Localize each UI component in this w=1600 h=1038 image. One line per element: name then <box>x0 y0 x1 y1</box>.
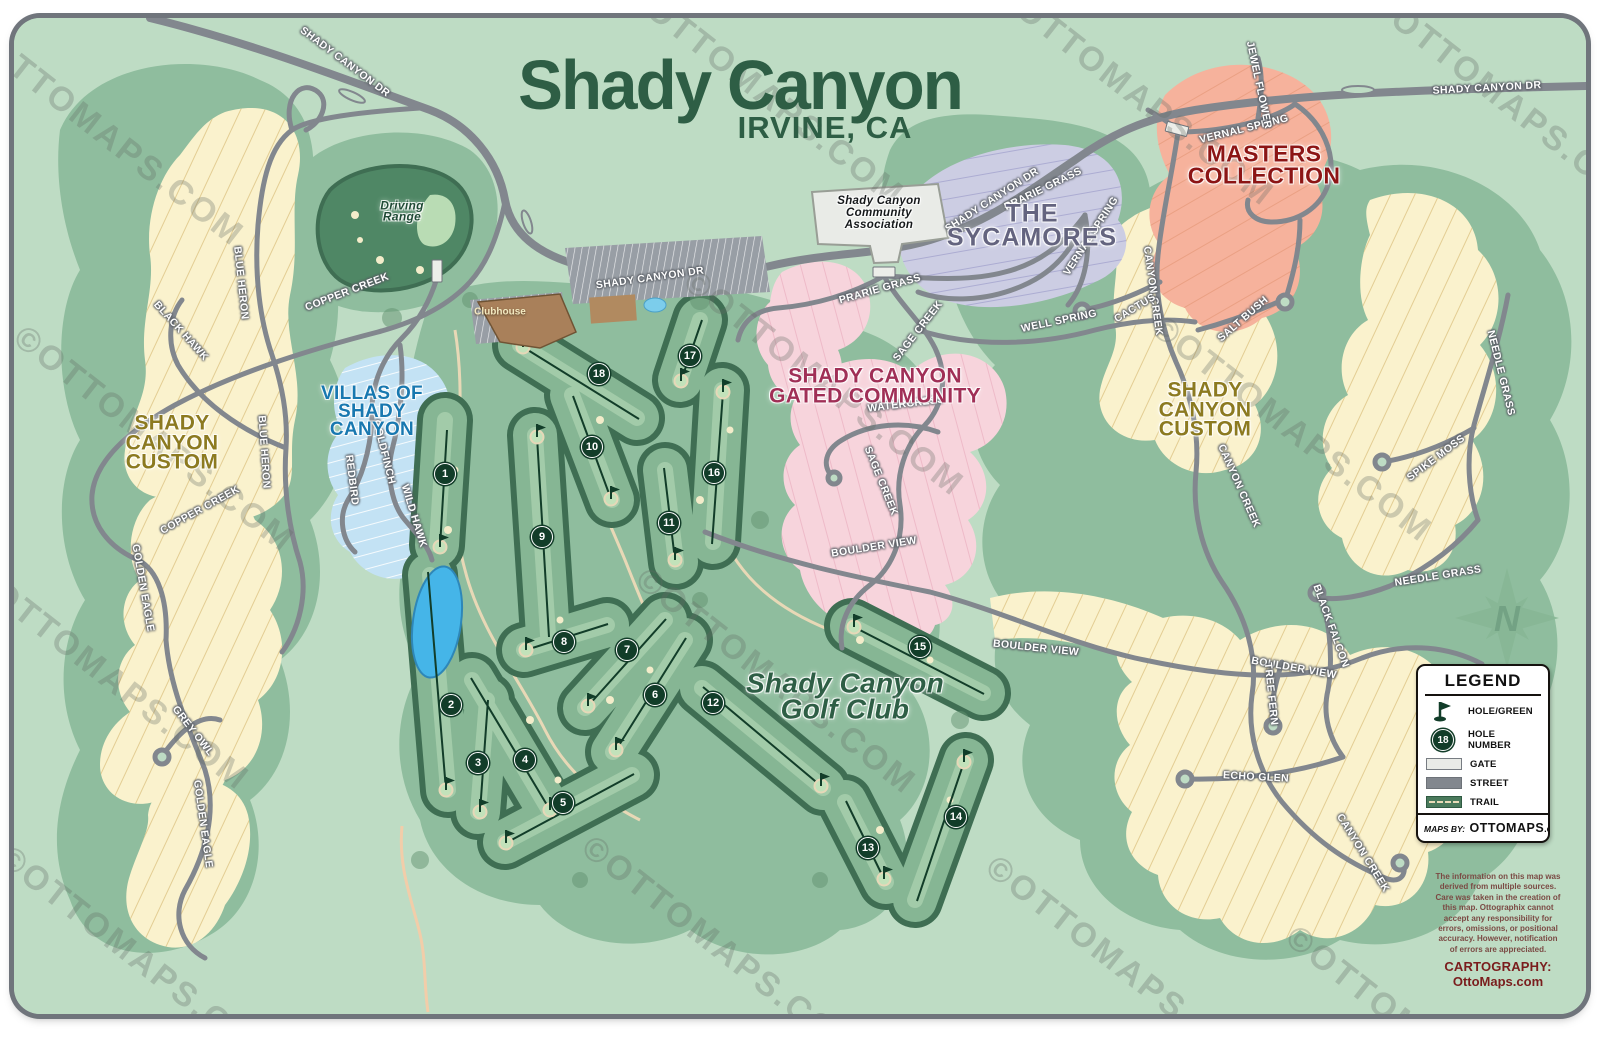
legend-item-gate: GATE <box>1418 754 1548 773</box>
hole-number-marker: 17 <box>679 345 701 367</box>
trail-swatch-icon <box>1426 796 1462 808</box>
label-line: CUSTOM <box>1159 420 1252 440</box>
map-frame: N ©OTTOMAPS.COM ©OTTOMAPS.COM ©OTTOMAPS.… <box>14 18 1586 1014</box>
hole-number-marker: 9 <box>531 526 553 548</box>
community-label-custom-right: SHADY CANYON CUSTOM <box>1159 380 1252 439</box>
label-line: CUSTOM <box>126 453 219 473</box>
hole-number-marker: 8 <box>553 631 575 653</box>
disclaimer-text: The information on this map was derived … <box>1434 872 1562 955</box>
legend-footer: MAPS BY: OTTOMAPS.com <box>1418 813 1548 841</box>
community-label-masters: MASTERS COLLECTION <box>1188 143 1341 186</box>
legend-item-label: TRAIL <box>1470 797 1499 808</box>
label-line: SHADY CANYON <box>769 366 981 386</box>
hole-number-marker: 3 <box>467 752 489 774</box>
hole-number-marker: 4 <box>514 749 536 771</box>
hole-number-icon: 18 <box>1432 729 1454 751</box>
legend-item-trail: TRAIL <box>1418 792 1548 811</box>
legend-item-hole-number: 18 HOLE NUMBER <box>1418 725 1548 754</box>
label-line: Association <box>837 219 920 231</box>
legend-item-street: STREET <box>1418 773 1548 792</box>
hole-number-marker: 16 <box>703 462 725 484</box>
cartography-name: OttoMaps.com <box>1434 974 1562 989</box>
hole-number-marker: 1 <box>434 463 456 485</box>
label-line: SHADY <box>1159 380 1252 400</box>
driving-range-label: Driving Range <box>380 201 423 224</box>
legend-title: LEGEND <box>1425 666 1541 696</box>
association-label: Shady Canyon Community Association <box>837 195 920 231</box>
title-main: Shady Canyon <box>466 50 1013 120</box>
shady-canyon-map-page: N ©OTTOMAPS.COM ©OTTOMAPS.COM ©OTTOMAPS.… <box>0 0 1600 1038</box>
compass-north-label: N <box>1494 598 1521 639</box>
label-line: SHADY <box>126 413 219 433</box>
golf-flag-icon <box>1426 700 1460 722</box>
label-line: Range <box>380 212 423 223</box>
hole-number-marker: 14 <box>945 806 967 828</box>
label-line: COLLECTION <box>1188 165 1341 187</box>
label-line: Community <box>837 207 920 219</box>
hole-number-marker: 6 <box>644 684 666 706</box>
map-title: Shady Canyon IRVINE, CA <box>455 50 1025 143</box>
map-footer-notes: The information on this map was derived … <box>1434 872 1562 989</box>
hole-number-marker: 10 <box>581 436 603 458</box>
label-line: THE <box>947 203 1117 227</box>
maps-by-prefix: MAPS BY: <box>1424 824 1465 834</box>
hole-number-marker: 2 <box>440 694 462 716</box>
hole-number-marker: 15 <box>909 636 931 658</box>
hole-number-marker: 12 <box>702 692 724 714</box>
label-line: GATED COMMUNITY <box>769 386 981 406</box>
community-label-sycamores: THE SYCAMORES <box>947 203 1117 250</box>
community-label-villas: VILLAS OF SHADY CANYON <box>321 385 423 439</box>
legend-item-label: HOLE NUMBER <box>1468 729 1540 751</box>
community-label-gated: SHADY CANYON GATED COMMUNITY <box>769 366 981 405</box>
maps-by-suffix: .com <box>1544 824 1550 834</box>
label-line: SYCAMORES <box>947 226 1117 250</box>
legend: LEGEND HOLE/GREEN 18 HOLE NUMBER GATE <box>1416 664 1550 843</box>
legend-item-label: STREET <box>1470 778 1509 789</box>
legend-item-label: HOLE/GREEN <box>1468 706 1533 717</box>
clubhouse-label: Clubhouse <box>474 307 526 318</box>
legend-item-label: GATE <box>1470 759 1496 770</box>
hole-number-marker: 11 <box>658 512 680 534</box>
legend-item-hole-green: HOLE/GREEN <box>1418 696 1548 725</box>
maps-by-brand: OTTOMAPS <box>1470 821 1545 835</box>
golf-club-label: Shady Canyon Golf Club <box>746 671 944 724</box>
hole-number-marker: 18 <box>588 363 610 385</box>
label-line: Golf Club <box>746 697 944 723</box>
hole-number-marker: 5 <box>552 792 574 814</box>
community-label-custom-left: SHADY CANYON CUSTOM <box>126 413 219 472</box>
label-line: CANYON <box>321 421 423 439</box>
cartography-label: CARTOGRAPHY: <box>1434 959 1562 974</box>
gate-swatch-icon <box>1426 758 1462 770</box>
hole-number-marker: 13 <box>857 837 879 859</box>
label-line: Shady Canyon <box>837 195 920 207</box>
street-swatch-icon <box>1426 777 1462 789</box>
hole-number-marker: 7 <box>616 639 638 661</box>
